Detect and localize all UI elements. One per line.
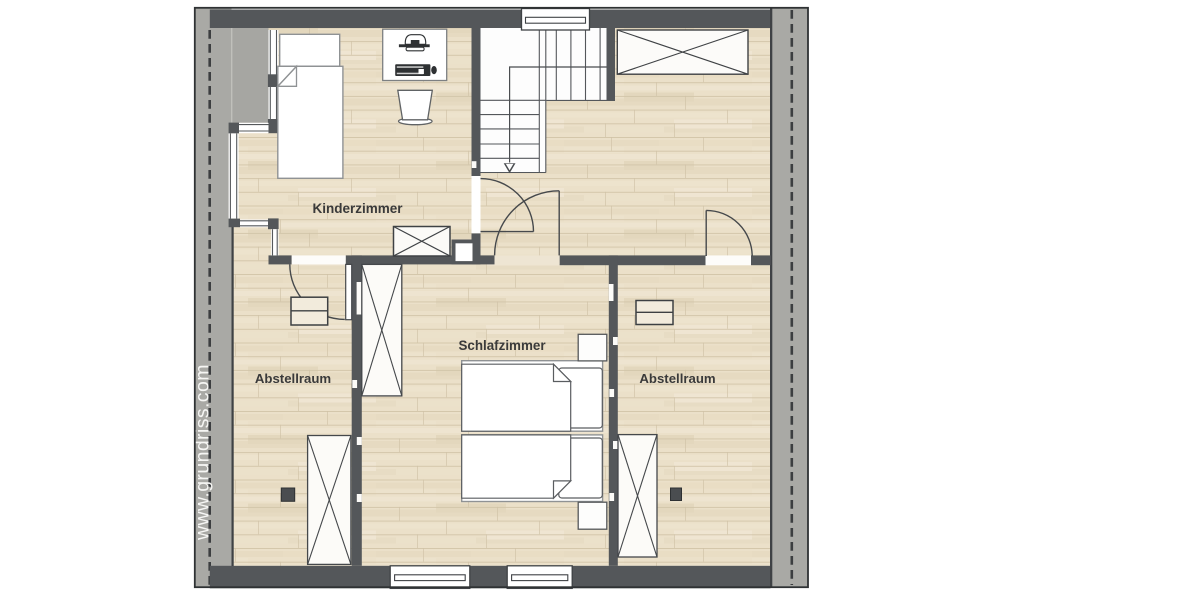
svg-text:Abstellraum: Abstellraum [255,371,331,386]
svg-text:Kinderzimmer: Kinderzimmer [312,201,403,216]
svg-text:Abstellraum: Abstellraum [639,371,715,386]
svg-text:Schlafzimmer: Schlafzimmer [458,338,546,353]
